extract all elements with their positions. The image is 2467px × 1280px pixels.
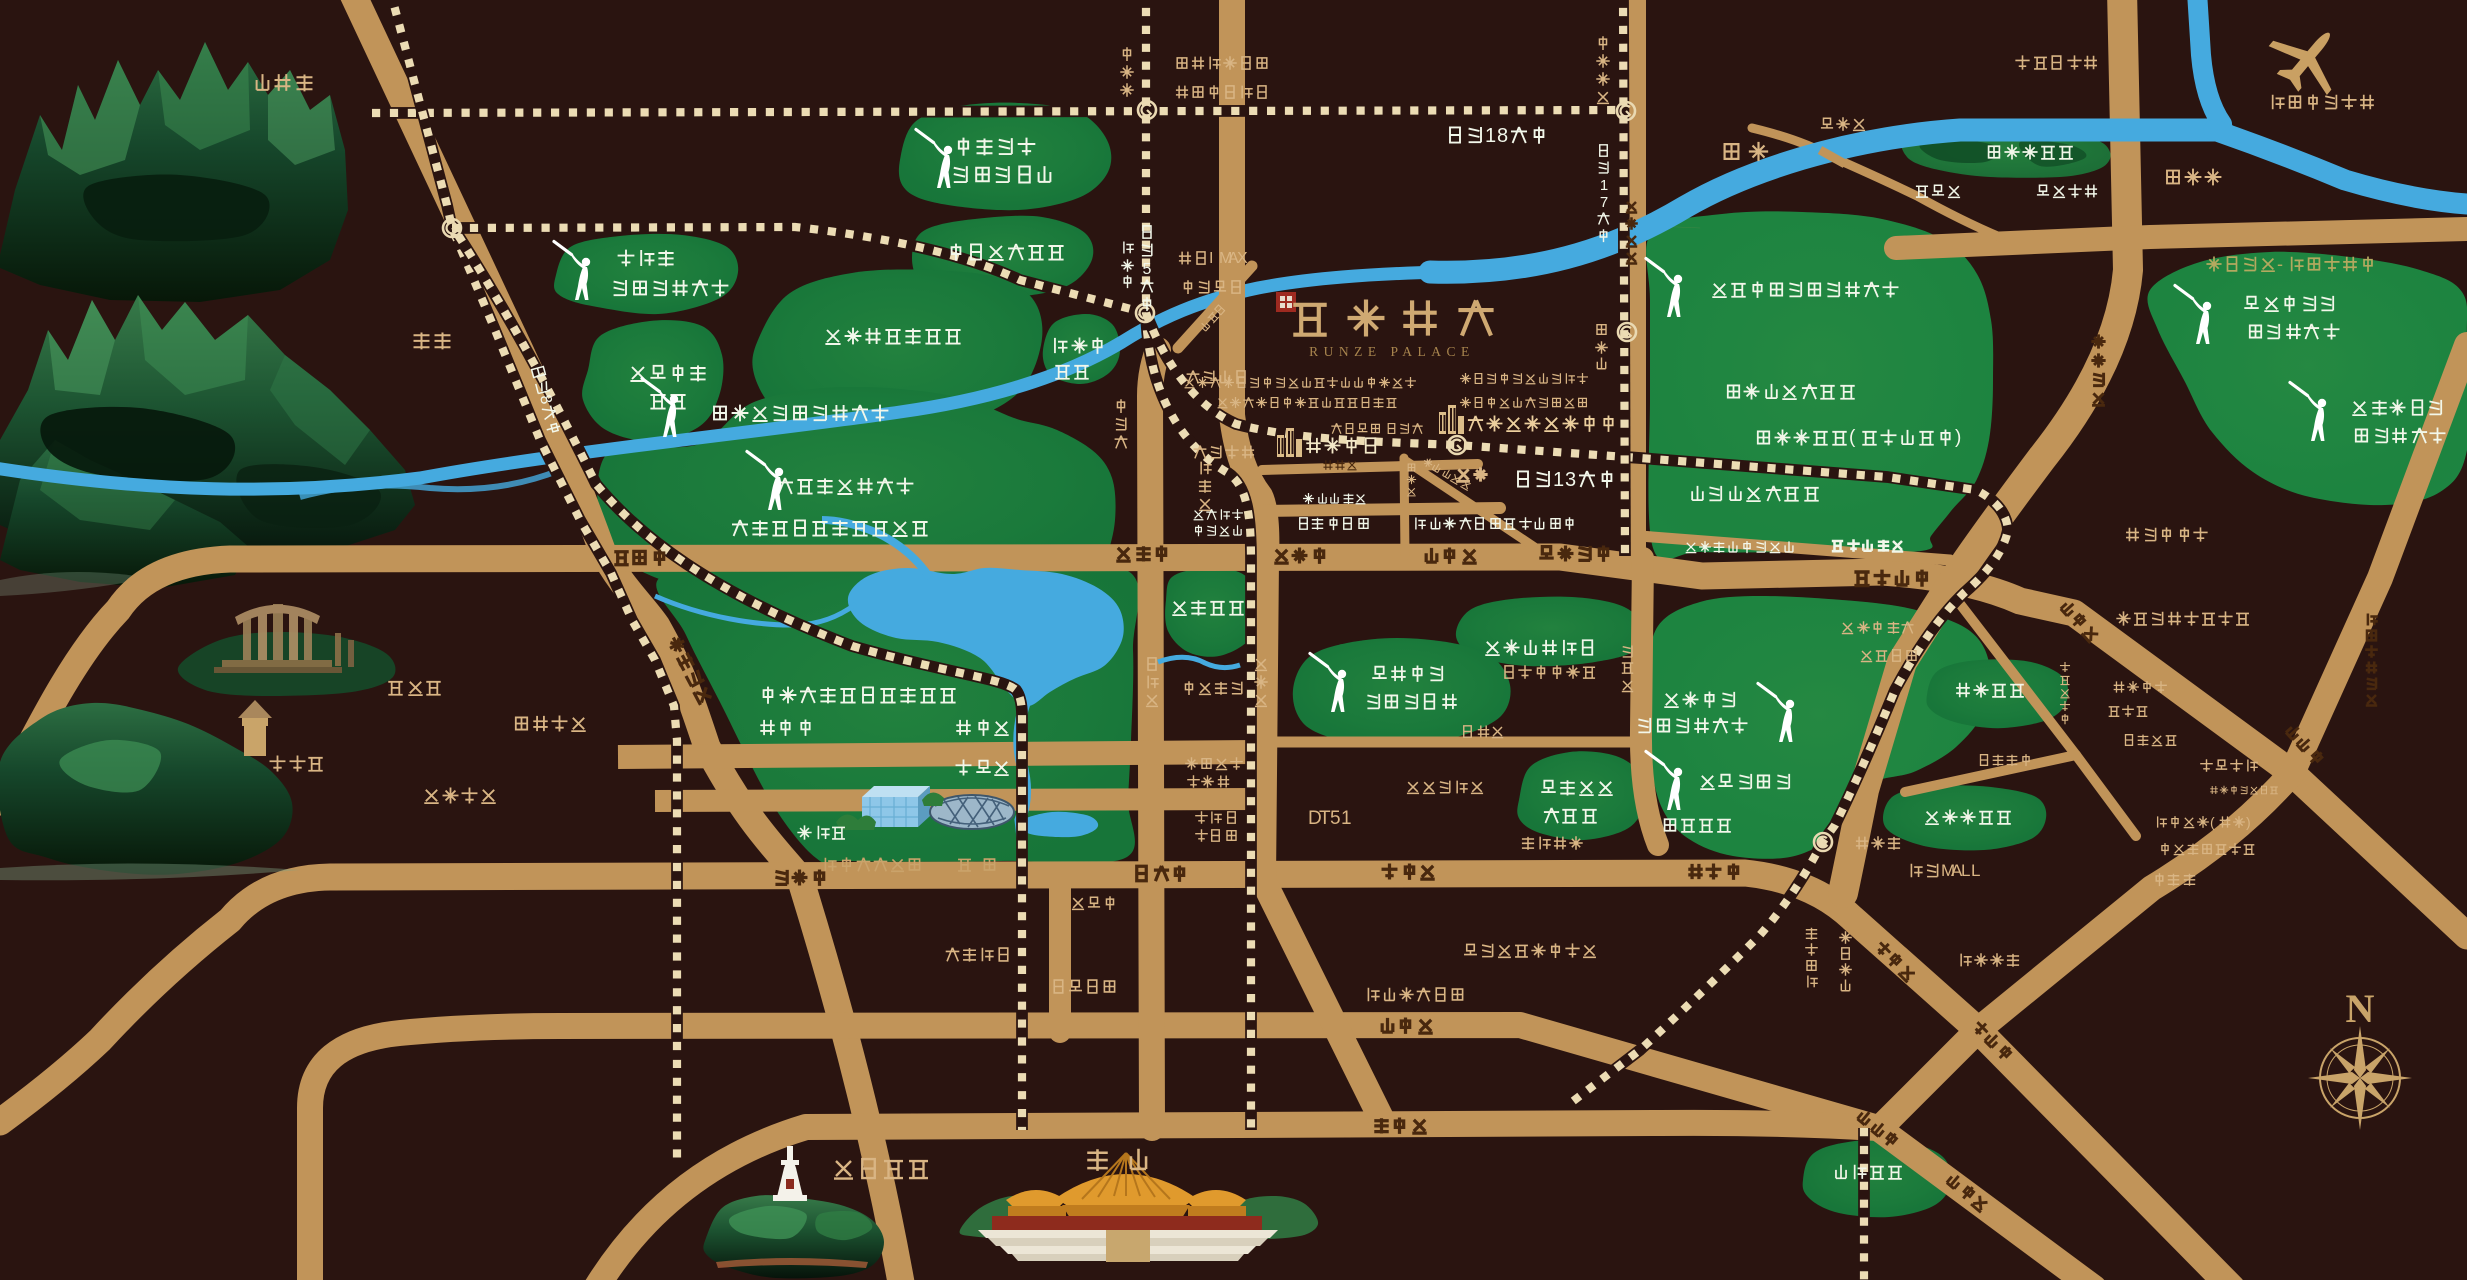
svg-text:5: 5 xyxy=(1330,808,1341,829)
svg-text:5: 5 xyxy=(1143,261,1152,278)
svg-text:7: 7 xyxy=(1600,194,1608,211)
svg-text:-: - xyxy=(2277,254,2283,274)
svg-text:(: ( xyxy=(2210,814,2215,830)
svg-text:): ) xyxy=(1955,427,1961,448)
svg-text:1: 1 xyxy=(1600,177,1608,194)
svg-text:3: 3 xyxy=(1565,469,1576,491)
svg-text:8: 8 xyxy=(1497,125,1508,147)
svg-text:1: 1 xyxy=(1485,125,1496,147)
svg-text:1: 1 xyxy=(1341,808,1352,829)
svg-text:): ) xyxy=(2246,814,2251,830)
svg-text:L: L xyxy=(1961,861,1970,880)
svg-text:I: I xyxy=(1209,250,1213,267)
svg-text:L: L xyxy=(1971,861,1980,880)
svg-text:(: ( xyxy=(1849,427,1856,448)
svg-text:RUNZE PALACE: RUNZE PALACE xyxy=(1309,344,1475,359)
svg-text:1: 1 xyxy=(1553,469,1564,491)
svg-text:X: X xyxy=(1237,250,1248,267)
svg-text:N: N xyxy=(2346,986,2375,1031)
